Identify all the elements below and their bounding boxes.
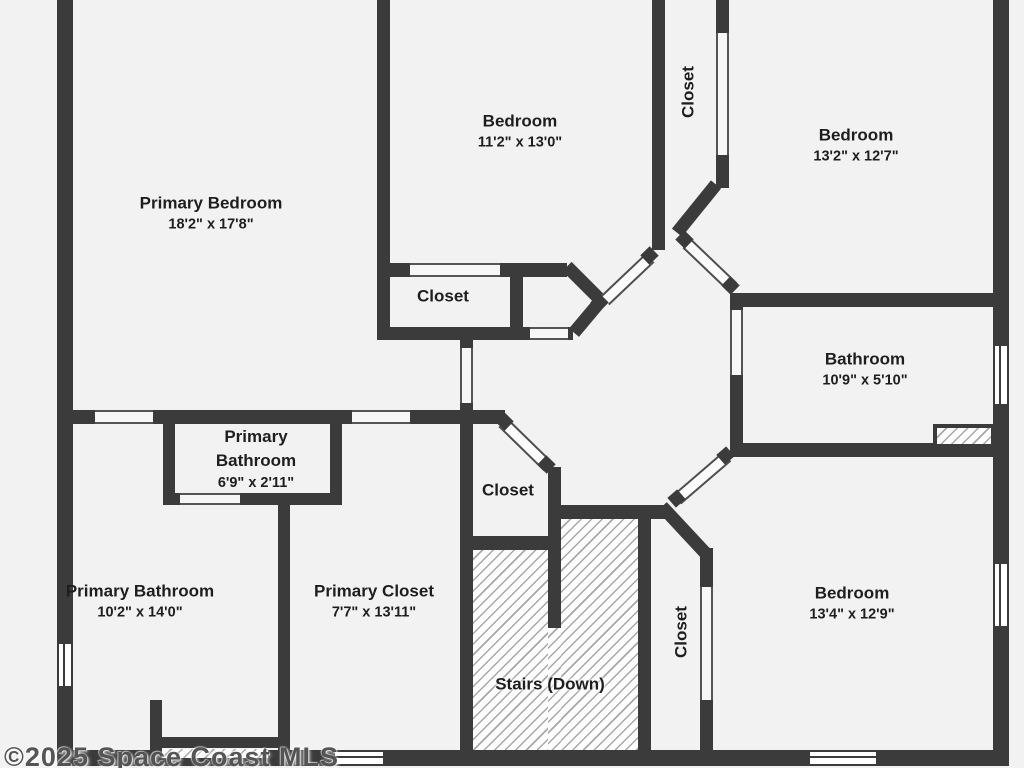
room-label-closet-hall: Closet [482,479,534,502]
window-bottom-wall-bedroom [808,750,878,766]
door-gap-wc [180,493,240,505]
floor-plan: Primary Bedroom 18'2" x 17'8" Bedroom 11… [0,0,1024,768]
room-dims-primary-wc: 6'9" x 2'11" [201,473,311,493]
room-name-closet-mid: Closet [417,285,469,308]
door-gap-mid-closet [410,263,500,277]
door-gap-primary-bath-west [95,410,153,424]
room-label-closet-bottom: Closet [670,606,693,658]
room-dims-primary-bedroom: 18'2" x 17'8" [140,215,283,235]
room-name-bathroom: Bathroom [822,348,907,371]
room-label-bedroom-right: Bedroom 13'2" x 12'7" [813,124,898,167]
room-label-primary-wc: Primary Bathroom 6'9" x 2'11" [201,425,311,493]
room-name-primary-bathroom: Primary Bathroom [66,580,214,603]
room-label-bedroom-top: Bedroom 11'2" x 13'0" [478,110,562,153]
wall-bath-closet-divider [278,493,290,766]
room-label-primary-bedroom: Primary Bedroom 18'2" x 17'8" [140,192,283,235]
door-gap-primary-suite [460,348,473,403]
room-dims-bedroom-bottom: 13'4" x 12'9" [809,605,894,625]
wall-wc-left [163,410,175,503]
window-left-wall [57,642,73,688]
room-label-stairs: Stairs (Down) [495,673,605,696]
room-label-closet-top: Closet [677,66,700,118]
door-gap-pentagon-nook [530,327,568,340]
room-name-bedroom-right: Bedroom [813,124,898,147]
wall-top-closet-diagonal [672,180,721,236]
wall-hall-closet-bottom [460,536,561,550]
room-name-closet-hall: Closet [482,479,534,502]
room-label-bathroom: Bathroom 10'9" x 5'10" [822,348,907,391]
window-bottom-wall-closet [333,750,385,766]
room-dims-bedroom-top: 11'2" x 13'0" [478,133,562,153]
wall-wc-right [330,410,342,503]
room-dims-bathroom: 10'9" x 5'10" [822,371,907,391]
stairs-hatch-left-flight [473,550,548,752]
room-name-bedroom-bottom: Bedroom [809,582,894,605]
wall-bathroom-top [735,293,1008,307]
wall-stairs-left [460,536,473,766]
room-name-primary-closet: Primary Closet [314,580,434,603]
wall-top-closet-left [652,0,665,250]
door-gap-top-closet [716,33,729,155]
stairs-hatch-right-flight [561,519,638,752]
wall-bottom-closet-left [638,505,651,766]
room-label-bedroom-bottom: Bedroom 13'4" x 12'9" [809,582,894,625]
wall-primary-bedroom-right [377,0,390,276]
bathroom-vanity-hatch [933,424,995,448]
door-gap-bottom-closet [700,587,713,700]
room-dims-bedroom-right: 13'2" x 12'7" [813,147,898,167]
room-name-stairs: Stairs (Down) [495,673,605,696]
door-gap-primary-bath-east [352,410,410,424]
mls-watermark: ©2025 Space Coast MLS [4,742,339,768]
room-dims-primary-bathroom: 10'2" x 14'0" [66,603,214,623]
room-name-primary-wc: Primary Bathroom [201,425,311,473]
room-name-closet-top: Closet [677,66,700,118]
room-label-primary-closet: Primary Closet 7'7" x 13'11" [314,580,434,623]
wall-stairs-divider [548,467,561,628]
door-gap-bathroom [730,310,743,375]
room-name-bedroom-top: Bedroom [478,110,562,133]
room-name-closet-bottom: Closet [670,606,693,658]
wall-mid-closet-bottom [377,327,523,340]
window-right-wall-bedroom [993,562,1009,628]
room-name-primary-bedroom: Primary Bedroom [140,192,283,215]
room-label-primary-bathroom: Primary Bathroom 10'2" x 14'0" [66,580,214,623]
room-dims-primary-closet: 7'7" x 13'11" [314,603,434,623]
window-right-wall-bathroom [993,344,1009,406]
room-label-closet-mid: Closet [417,285,469,308]
